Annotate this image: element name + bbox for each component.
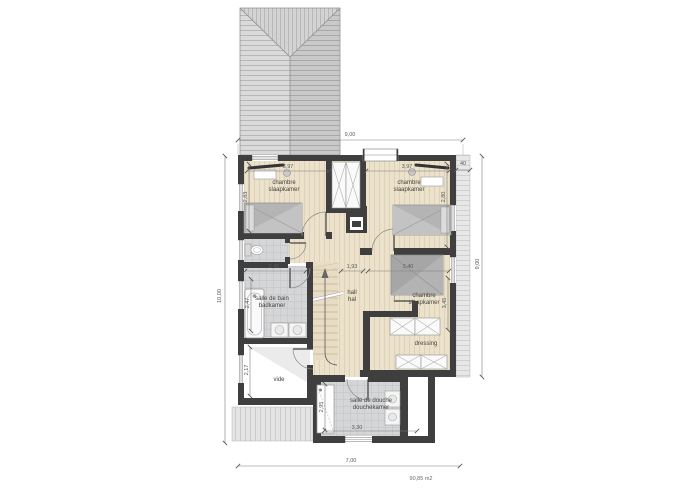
room-label-line: slaapkamer [268, 187, 299, 194]
room-label-line: badkamer [255, 303, 289, 310]
room-label-line: chambre [408, 293, 439, 300]
dim-bedroom-r-width: 3,40 [403, 264, 414, 270]
dim-bathroom-depth: 2,47 [245, 298, 251, 309]
roof-plan [240, 8, 340, 155]
room-label-line: slaapkamer [408, 300, 439, 307]
window-top-left [251, 155, 279, 161]
room-label-line: vide [273, 377, 284, 384]
room-label-bedroom-top-right: chambre slaapkamer [393, 180, 424, 193]
wardrobe-closets [332, 162, 360, 208]
window-top-center [363, 149, 398, 161]
dim-overall-top: 9,00 [345, 132, 356, 138]
dim-eave-offset: 40 [460, 161, 466, 167]
window-left-wc [238, 239, 244, 262]
bed-top-right [393, 205, 451, 235]
dim-bedroom-tr-width: 3,97 [402, 164, 413, 170]
room-label-line: chambre [268, 180, 299, 187]
room-label-line: dressing [415, 341, 438, 348]
floor-plan-canvas: chambre slaapkamer chambre slaapkamer ch… [0, 0, 700, 491]
dim-shower-depth: 2,95 [319, 402, 325, 413]
dim-bedroom-tr-depth: 2,80 [441, 192, 447, 203]
window-right-bedroom [450, 256, 456, 285]
dim-bedroom-tl-width: 3,97 [283, 164, 294, 170]
room-label-bedroom-top-left: chambre slaapkamer [268, 180, 299, 193]
window-left-bathroom [238, 280, 244, 311]
dim-bedroom-r-depth: 3,45 [442, 298, 448, 309]
room-label-line: salle de bain [255, 296, 289, 303]
room-label-dressing: dressing [415, 341, 438, 348]
room-label-line: chambre [393, 180, 424, 187]
room-label-bedroom-right: chambre slaapkamer [408, 293, 439, 306]
staircase [308, 262, 343, 365]
room-label-shower: salle de douche douchekamer [350, 398, 392, 411]
dim-void-depth: 2,17 [244, 365, 250, 376]
room-label-line: slaapkamer [393, 187, 424, 194]
floor-plan-drawing [0, 0, 700, 491]
room-label-void: vide [273, 377, 284, 384]
room-label-line: salle de douche [350, 398, 392, 405]
dim-shower-width: 3,30 [352, 425, 363, 431]
dim-bathroom-width: 2,45 [269, 264, 280, 270]
dim-hall-width: 1,93 [347, 264, 358, 270]
dim-bedroom-tl-depth: 2,83 [243, 192, 249, 203]
room-label-line: douchekamer [350, 405, 392, 412]
dim-overall-left: 10,00 [217, 289, 223, 303]
bed-top-left [244, 203, 302, 233]
room-label-line: hal [347, 297, 356, 304]
room-label-line: hall [347, 290, 356, 297]
dim-overall-bottom: 7,00 [346, 458, 357, 464]
dim-overall-right: 9,00 [475, 259, 481, 270]
area-annotation: 90,85 m2 [410, 476, 433, 482]
window-shower [344, 436, 374, 443]
room-label-bathroom: salle de bain badkamer [255, 296, 289, 309]
bed-right [391, 255, 443, 295]
room-label-hall: hall hal [347, 290, 356, 303]
